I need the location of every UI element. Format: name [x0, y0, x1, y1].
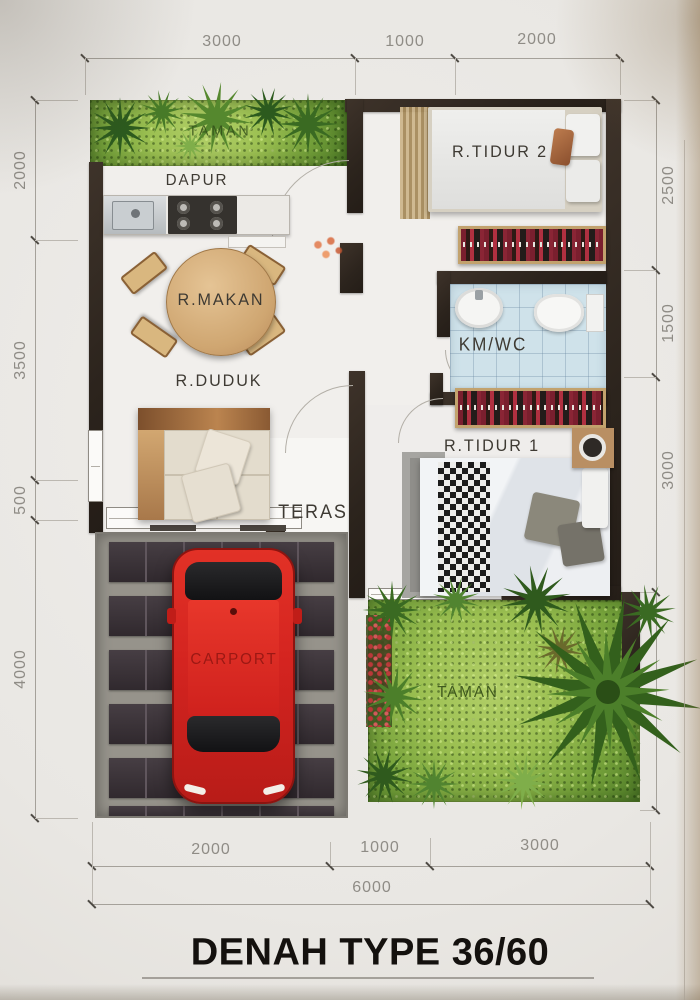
sofa-arm-wood — [138, 430, 164, 520]
dim-line-bottom — [92, 866, 650, 867]
dim-right-1: 2500 — [660, 165, 678, 205]
wall — [347, 99, 363, 213]
extension-line — [35, 240, 78, 241]
floor-plan-photo: 3000 1000 2000 2000 3500 500 4000 2500 1… — [0, 0, 700, 1000]
garden-bottom — [368, 592, 640, 802]
sink-faucet — [131, 209, 140, 218]
dim-left-1: 2000 — [12, 150, 30, 190]
extension-line — [35, 818, 78, 819]
wardrobe-rack — [458, 226, 606, 264]
extension-line — [640, 592, 656, 593]
label-taman-top: TAMAN — [188, 123, 251, 140]
label-carport: CARPORT — [190, 651, 277, 669]
extension-line — [640, 810, 656, 811]
side-table-mat — [572, 428, 614, 468]
wall — [622, 592, 640, 704]
toilet-bowl — [534, 294, 584, 332]
dim-right-3: 3000 — [660, 450, 678, 490]
carport-tile-band — [109, 806, 334, 818]
wardrobe-rack — [455, 388, 606, 428]
kitchen-shelf — [228, 236, 286, 248]
flower-deco — [306, 232, 346, 264]
carport-area: CARPORT — [95, 532, 348, 818]
photo-page-edge — [684, 140, 685, 1000]
bed1-pillow-white — [582, 468, 608, 528]
bowl — [579, 434, 606, 461]
dim-line-left — [35, 100, 36, 818]
extension-line — [35, 480, 78, 481]
car-antenna — [230, 608, 237, 615]
car-windshield-front — [185, 562, 282, 600]
extension-line — [624, 377, 656, 378]
label-taman-bottom: TAMAN — [437, 684, 499, 702]
bed1-mattress — [420, 458, 610, 596]
dim-top-1: 3000 — [202, 33, 242, 51]
dim-bottom-1: 2000 — [191, 841, 231, 859]
car: CARPORT — [172, 548, 295, 804]
burner — [177, 217, 190, 230]
extension-line — [455, 58, 456, 95]
extension-line — [624, 100, 656, 101]
dim-left-4: 4000 — [12, 649, 30, 689]
extension-line — [650, 822, 651, 904]
bed2-pillow — [566, 160, 600, 202]
extension-line — [35, 520, 78, 521]
label-r-tidur-1: R.TIDUR 1 — [444, 436, 540, 456]
label-r-tidur-2: R.TIDUR 2 — [452, 142, 548, 162]
car-mirror — [167, 608, 176, 624]
window-sofa-wall — [88, 430, 103, 502]
dim-right-2: 1500 — [660, 303, 678, 343]
extension-line — [330, 842, 331, 866]
extension-line — [92, 822, 93, 904]
label-r-makan: R.MAKAN — [178, 290, 265, 310]
label-km-wc: KM/WC — [459, 335, 527, 356]
car-mirror — [293, 608, 302, 624]
label-r-duduk: R.DUDUK — [176, 371, 263, 391]
flower-bed — [366, 615, 392, 727]
dim-top-2: 1000 — [385, 33, 425, 51]
extension-line — [85, 58, 86, 95]
wall — [437, 271, 450, 337]
burner — [210, 217, 223, 230]
toilet-tank — [586, 294, 604, 332]
dim-bottom-total: 6000 — [352, 879, 392, 897]
label-teras: TERAS — [278, 502, 348, 524]
window-sill — [240, 525, 286, 531]
extension-line — [624, 270, 656, 271]
car-headlight — [262, 783, 285, 795]
dim-bottom-3: 3000 — [520, 837, 560, 855]
label-dapur: DAPUR — [166, 172, 229, 190]
extension-line — [620, 58, 621, 95]
sofa-back-wood — [138, 408, 270, 430]
tatami-mat — [400, 107, 430, 219]
extension-line — [430, 838, 431, 866]
hanger-rail — [463, 242, 601, 247]
car-windshield-rear — [187, 716, 280, 752]
car-headlight — [183, 783, 206, 795]
sink-tap — [475, 290, 483, 300]
bed1-checker-blanket — [438, 462, 490, 592]
kitchen-sink — [104, 196, 166, 234]
title-underline — [142, 977, 594, 979]
extension-line — [35, 100, 78, 101]
wall — [437, 271, 607, 284]
dim-left-2: 3500 — [12, 340, 30, 380]
kitchen-stove — [168, 196, 237, 234]
hanger-rail — [460, 405, 601, 410]
burner — [177, 201, 190, 214]
dim-line-top — [85, 58, 620, 59]
burner — [210, 201, 223, 214]
dim-line-right — [656, 100, 657, 810]
extension-line — [355, 58, 356, 95]
page-title: DENAH TYPE 36/60 — [191, 932, 550, 975]
bathroom-sink — [455, 288, 503, 328]
car-roof: CARPORT — [188, 600, 279, 716]
sofa — [138, 408, 270, 520]
dim-left-3: 500 — [12, 485, 30, 515]
window-sill — [150, 525, 196, 531]
dim-bottom-2: 1000 — [360, 839, 400, 857]
dim-top-3: 2000 — [517, 31, 557, 49]
dim-line-total — [92, 904, 650, 905]
